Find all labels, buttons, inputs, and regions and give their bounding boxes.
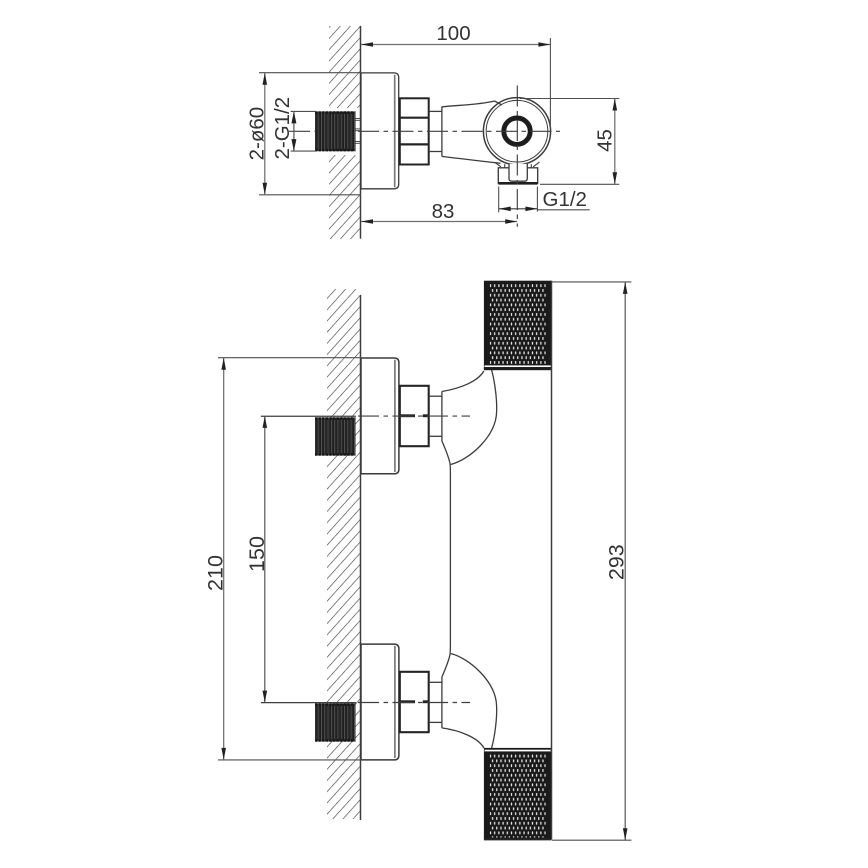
svg-text:210: 210: [203, 555, 227, 591]
svg-text:100: 100: [436, 22, 470, 45]
svg-text:293: 293: [604, 544, 628, 580]
svg-text:45: 45: [594, 129, 617, 152]
svg-text:G1/2: G1/2: [543, 188, 587, 211]
svg-text:150: 150: [245, 536, 269, 572]
svg-text:2-G1/2: 2-G1/2: [271, 97, 294, 160]
svg-text:2-ø60: 2-ø60: [245, 107, 268, 161]
svg-text:83: 83: [432, 200, 455, 223]
